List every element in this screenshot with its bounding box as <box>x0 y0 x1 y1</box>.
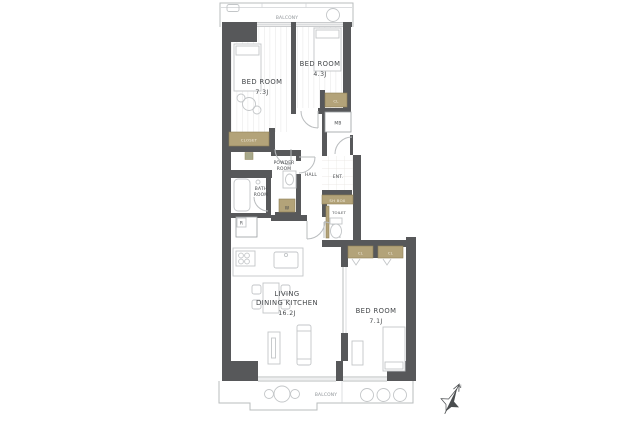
windows <box>258 377 387 381</box>
powder-door-arc <box>299 157 315 173</box>
ldk-size: 16.2J <box>278 310 296 317</box>
closet-bedroom3-left-label: CL <box>358 251 364 256</box>
planter-icon <box>394 389 407 402</box>
powder-room-line1: POWDER <box>274 160 295 166</box>
bedroom2-door-arc <box>301 111 318 128</box>
chair-icon <box>252 285 261 294</box>
ldk-name-line2: DINING KITCHEN <box>256 299 318 307</box>
balcony-bottom: BALCONY <box>219 381 413 410</box>
balcony-chair-icon <box>291 390 300 399</box>
bathtub-icon <box>234 179 250 211</box>
meter-box-label: MB <box>334 121 341 127</box>
bedroom2-name: BED ROOM <box>300 60 341 68</box>
balcony-item-icon <box>227 5 239 12</box>
closet-bedroom2-label: CL <box>333 99 339 104</box>
balcony-top-label: BALCONY <box>276 15 298 21</box>
storage-box <box>245 153 253 160</box>
bedroom2-size: 4.3J <box>313 71 326 78</box>
toilet-icon <box>331 224 342 238</box>
entry-door-arc <box>335 137 352 154</box>
washer-label: W <box>285 206 290 212</box>
bedroom3-size: 7.1J <box>369 318 382 325</box>
bath-room-line1: BATH <box>255 186 267 192</box>
pillow-icon <box>236 46 259 55</box>
compass-icon: N <box>436 380 468 418</box>
bath-door-arc <box>254 197 268 211</box>
powder-room-line2: ROOM <box>277 166 292 172</box>
bedroom1-name: BED ROOM <box>242 78 283 86</box>
planter-icon <box>377 389 390 402</box>
entrance-floor <box>322 156 353 190</box>
ldk-door-arc <box>307 221 325 239</box>
floorplan-drawing: BALCONY <box>0 0 640 426</box>
toilet-tank-icon <box>330 218 342 224</box>
ldk-name-line1: LIVING <box>274 290 299 298</box>
tv-board-icon <box>268 332 280 364</box>
pillow-icon <box>385 362 403 369</box>
entrance-label: ENT. <box>333 174 343 180</box>
bedroom3-name: BED ROOM <box>356 307 397 315</box>
balcony-bottom-label: BALCONY <box>315 392 337 398</box>
shower-icon <box>256 180 260 184</box>
dining-table-icon <box>263 283 279 313</box>
balcony-chair-icon <box>265 390 274 399</box>
closet-door-mark <box>383 259 391 265</box>
bath-room-line2: ROOM <box>254 192 269 198</box>
pillow-icon <box>316 30 339 38</box>
planter-icon <box>327 9 340 22</box>
planter-icon <box>361 389 374 402</box>
top-windows <box>257 22 343 27</box>
balcony-table-icon <box>274 386 290 402</box>
closet-bedroom1-label: CLOSET <box>241 138 258 143</box>
hall-label: HALL <box>305 172 317 178</box>
desk-icon <box>352 341 363 365</box>
bedroom1-size: 7.3J <box>255 89 268 96</box>
floorplan-canvas: BALCONY <box>0 0 640 426</box>
compass-north-label: N <box>458 384 462 390</box>
closet-bedroom3-right-label: CL <box>388 251 394 256</box>
shoe-box-label: SH BOX <box>329 198 345 203</box>
meter-box: MB <box>325 112 351 132</box>
closet-door-mark <box>352 259 360 265</box>
toilet-label: TOILET <box>331 210 346 215</box>
refrigerator-label: R <box>240 221 243 227</box>
